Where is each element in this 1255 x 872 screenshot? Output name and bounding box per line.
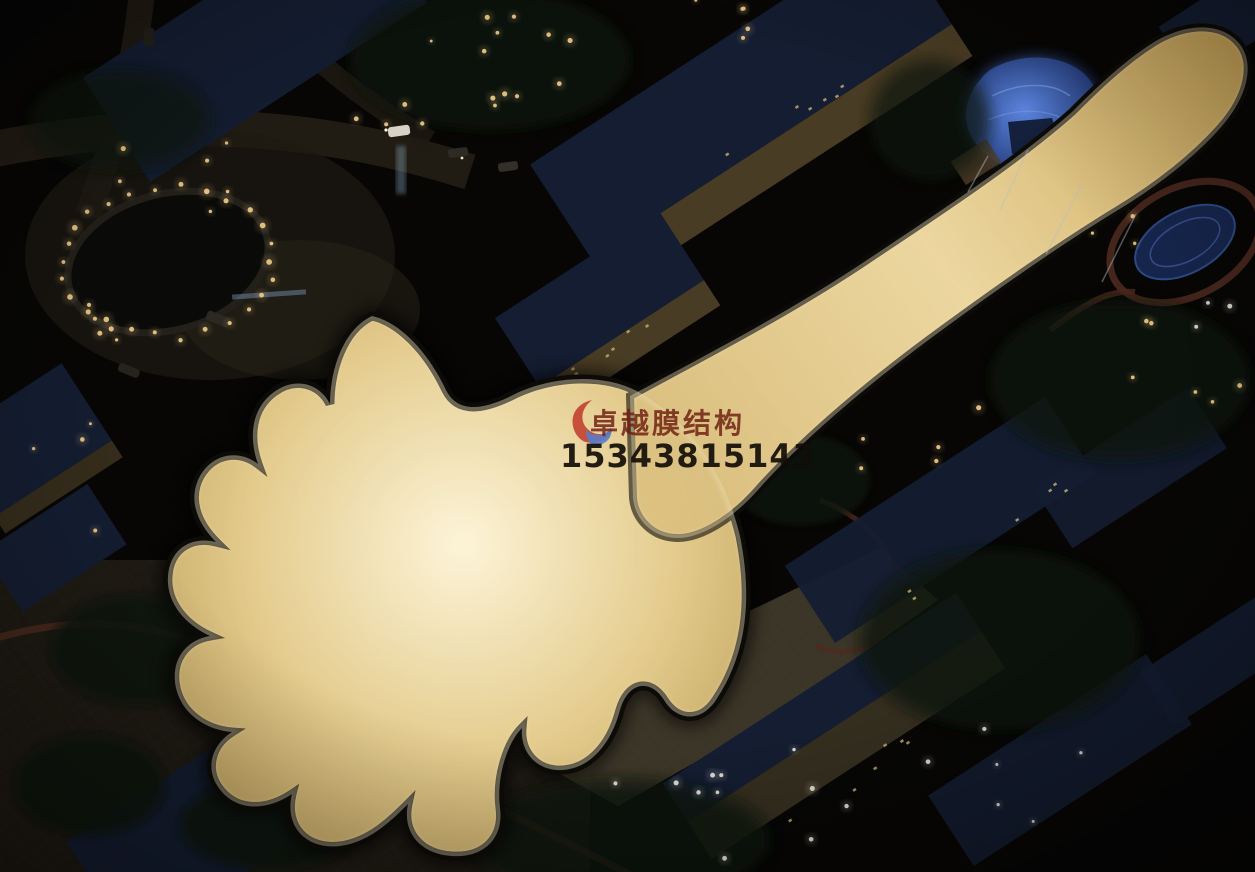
aerial-night-photo: 卓越膜结构 15343815143 <box>0 0 1255 872</box>
watermark-phone-text: 15343815143 <box>560 437 816 475</box>
scene-canvas: 卓越膜结构 15343815143 <box>0 0 1255 872</box>
watermark-company-text: 卓越膜结构 <box>590 407 745 440</box>
